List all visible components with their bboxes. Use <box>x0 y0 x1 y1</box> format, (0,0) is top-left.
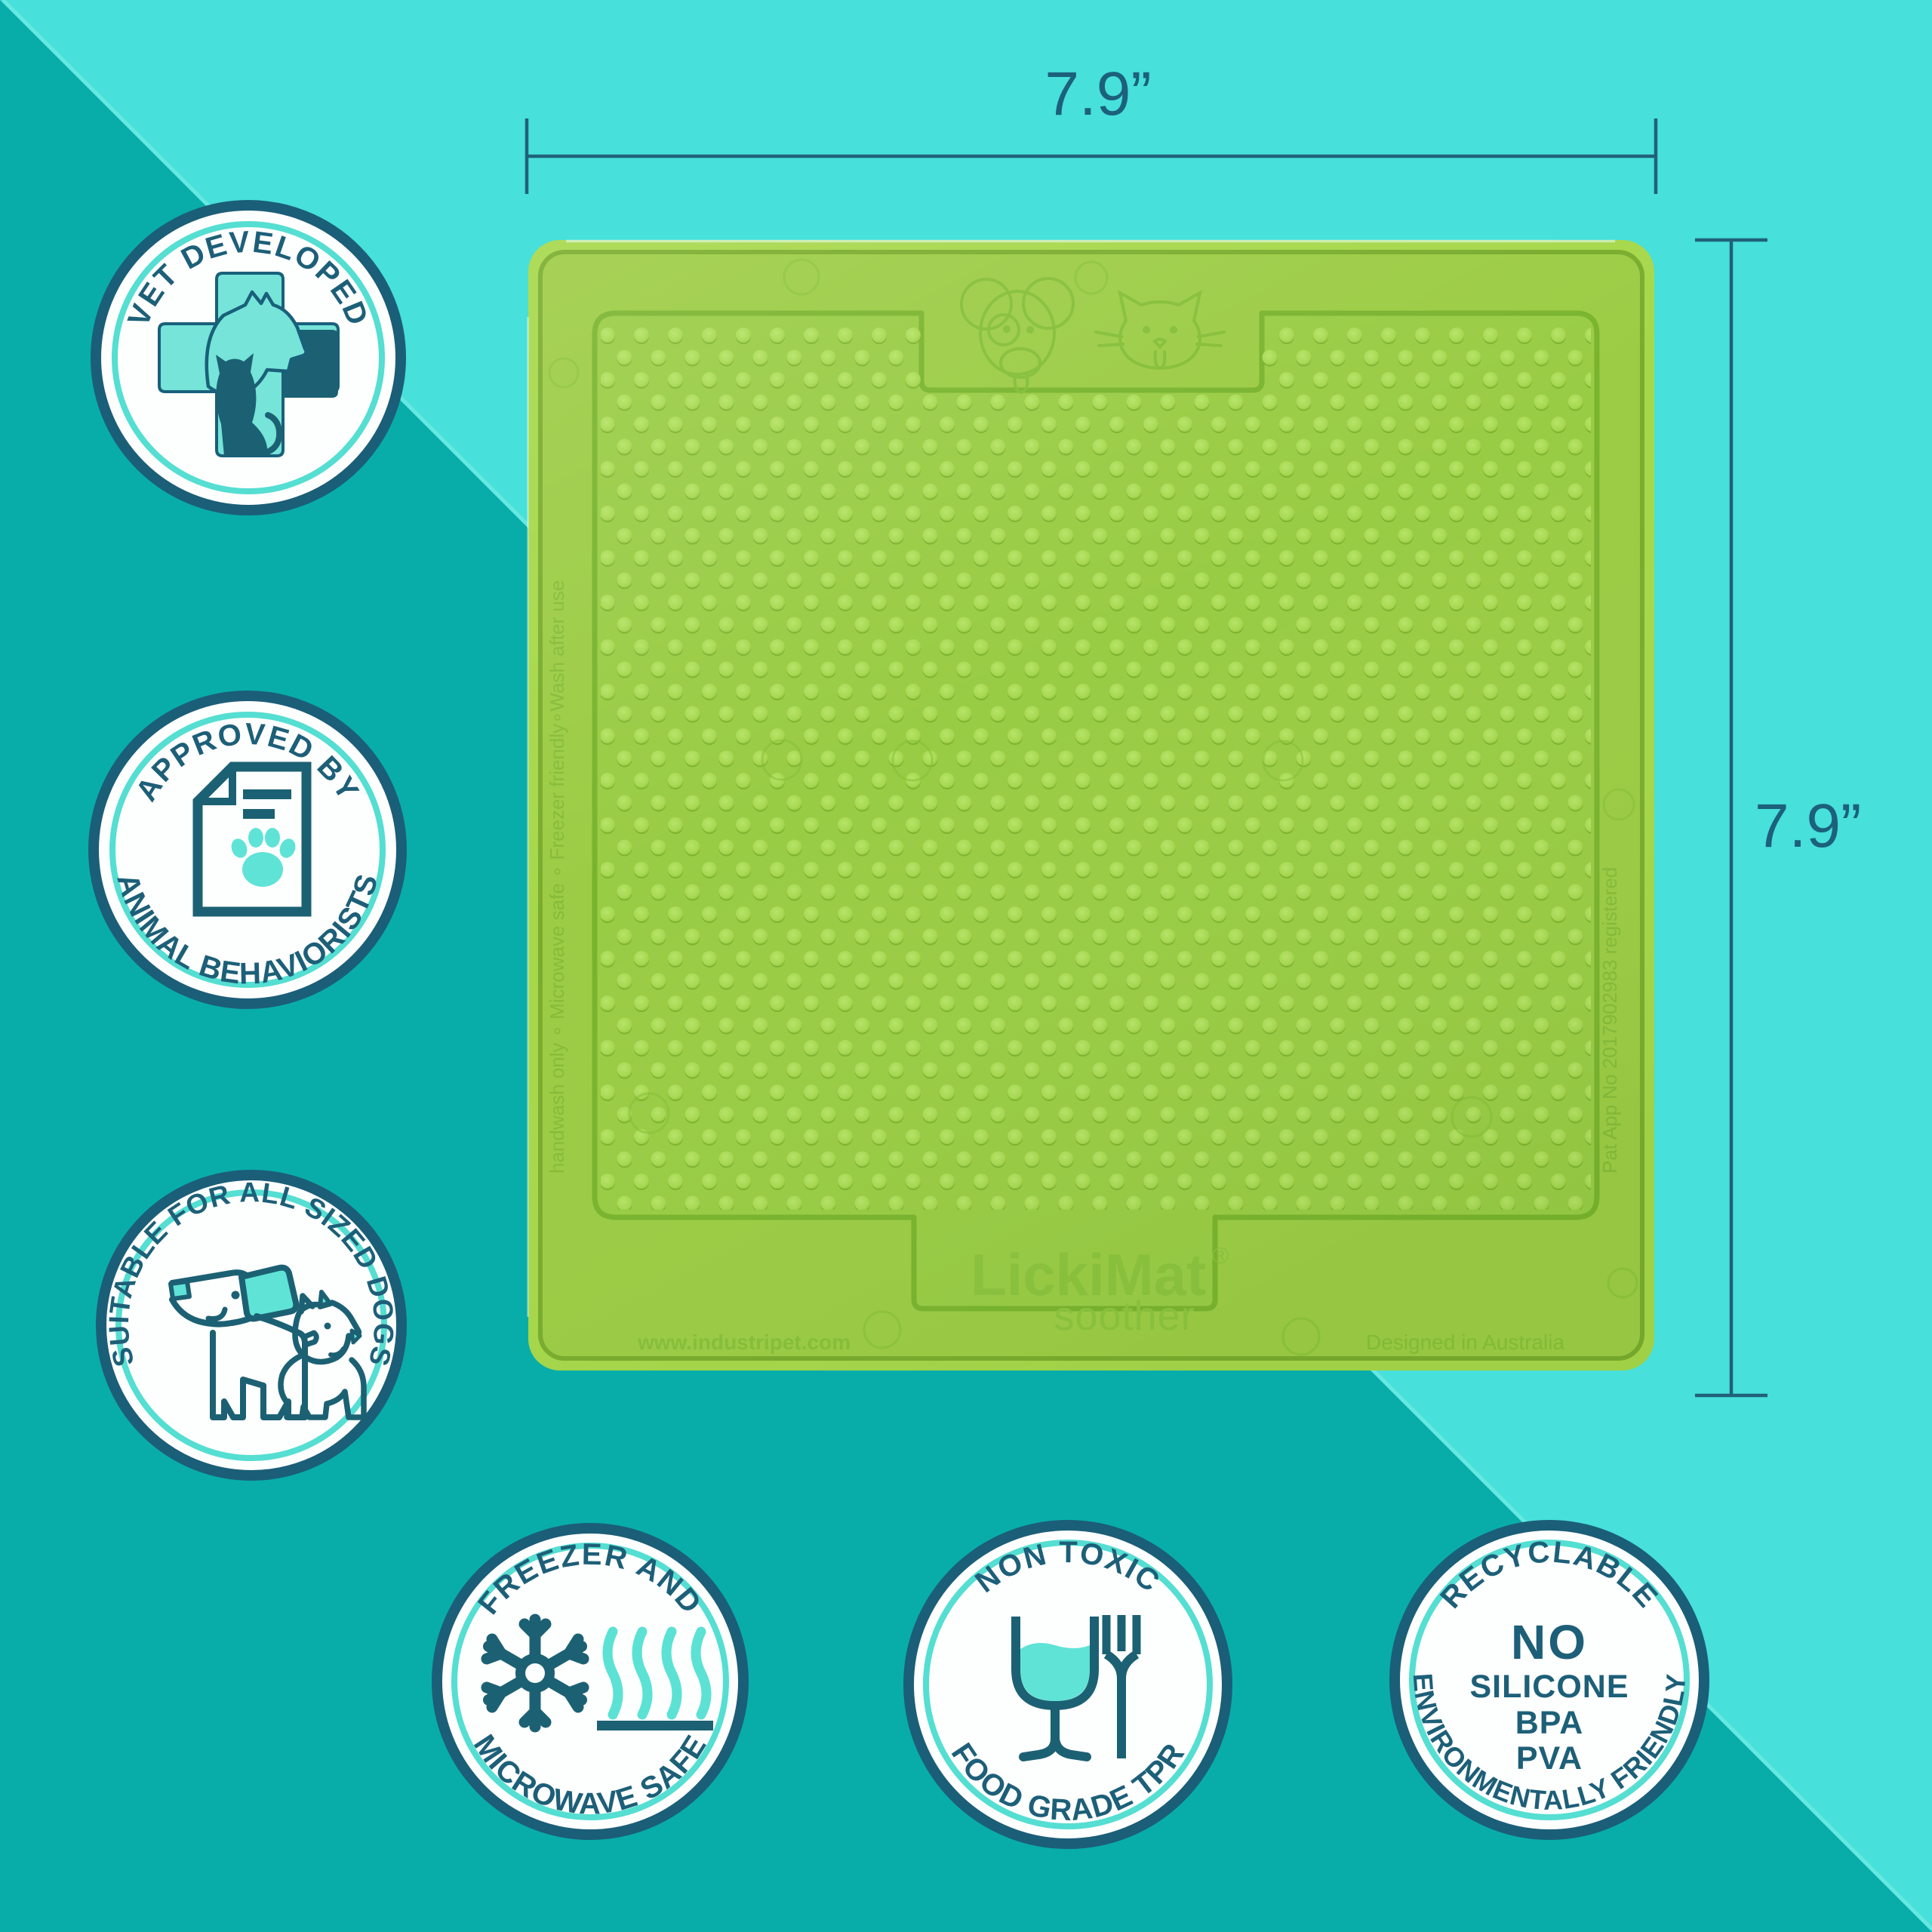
svg-text:NO: NO <box>1511 1615 1588 1669</box>
svg-text:BPA: BPA <box>1515 1705 1584 1741</box>
svg-text:PVA: PVA <box>1516 1740 1583 1777</box>
svg-text:SILICONE: SILICONE <box>1469 1669 1629 1705</box>
svg-text:7.9”: 7.9” <box>1044 60 1151 128</box>
svg-text:7.9”: 7.9” <box>1755 792 1861 860</box>
